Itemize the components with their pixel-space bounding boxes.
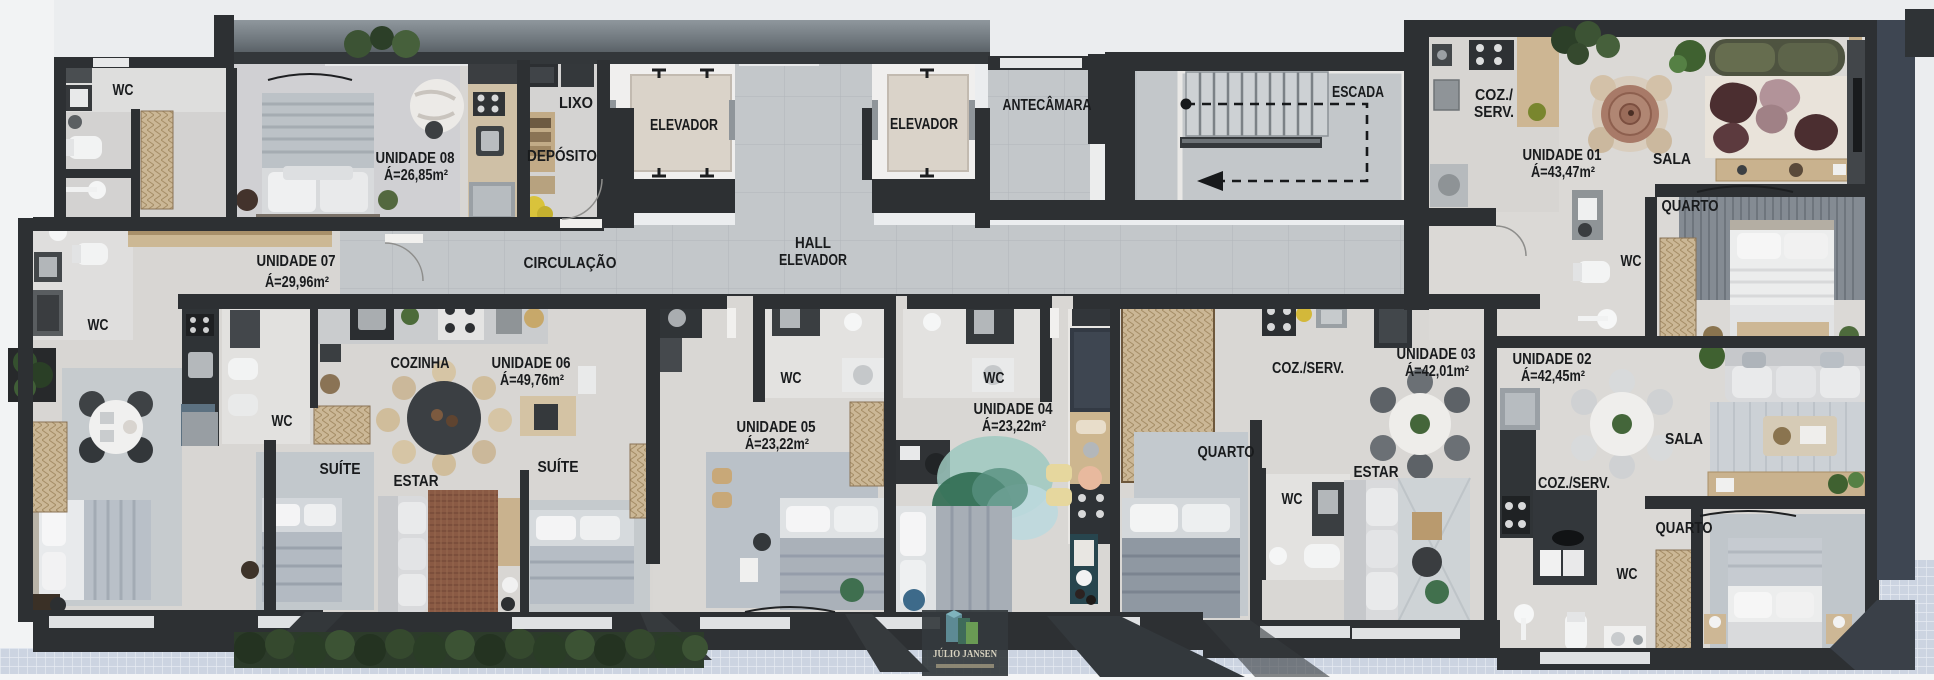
svg-text:COZ./: COZ./ <box>1475 87 1514 104</box>
svg-text:ANTECÂMARA: ANTECÂMARA <box>1003 96 1092 114</box>
svg-text:WC: WC <box>272 413 293 430</box>
svg-text:COZINHA: COZINHA <box>391 355 450 372</box>
svg-text:Á=26,85m²: Á=26,85m² <box>384 167 448 184</box>
svg-text:ESTAR: ESTAR <box>394 473 439 490</box>
svg-text:UNIDADE 04: UNIDADE 04 <box>974 401 1053 418</box>
svg-text:CIRCULAÇÃO: CIRCULAÇÃO <box>524 254 617 272</box>
svg-text:ESCADA: ESCADA <box>1332 84 1384 101</box>
svg-text:WC: WC <box>984 370 1005 387</box>
svg-text:WC: WC <box>1621 253 1642 270</box>
svg-text:JÚLIO JANSEN: JÚLIO JANSEN <box>933 648 998 660</box>
svg-text:SALA: SALA <box>1653 151 1691 168</box>
svg-text:UNIDADE 05: UNIDADE 05 <box>737 419 816 436</box>
svg-text:SERV.: SERV. <box>1474 104 1514 121</box>
svg-text:QUARTO: QUARTO <box>1656 520 1713 537</box>
svg-text:ELEVADOR: ELEVADOR <box>650 117 718 134</box>
svg-text:WC: WC <box>1282 491 1303 508</box>
svg-text:Á=23,22m²: Á=23,22m² <box>982 418 1046 435</box>
svg-text:UNIDADE 08: UNIDADE 08 <box>376 150 455 167</box>
svg-text:LIXO: LIXO <box>559 95 593 112</box>
svg-text:UNIDADE 01: UNIDADE 01 <box>1523 147 1602 164</box>
svg-text:Á=23,22m²: Á=23,22m² <box>745 436 809 453</box>
svg-text:WC: WC <box>1617 566 1638 583</box>
svg-text:Á=42,01m²: Á=42,01m² <box>1405 363 1469 380</box>
svg-text:ELEVADOR: ELEVADOR <box>890 116 958 133</box>
svg-text:SUÍTE: SUÍTE <box>538 459 579 476</box>
svg-text:DEPÓSITO: DEPÓSITO <box>527 147 597 165</box>
svg-text:Á=29,96m²: Á=29,96m² <box>265 274 329 291</box>
svg-text:Á=42,45m²: Á=42,45m² <box>1521 368 1585 385</box>
svg-text:SALA: SALA <box>1665 431 1703 448</box>
svg-text:UNIDADE 03: UNIDADE 03 <box>1397 346 1476 363</box>
svg-text:Á=49,76m²: Á=49,76m² <box>500 372 564 389</box>
svg-text:SUÍTE: SUÍTE <box>320 461 361 478</box>
svg-text:UNIDADE 02: UNIDADE 02 <box>1513 351 1592 368</box>
svg-text:Á=43,47m²: Á=43,47m² <box>1531 164 1595 181</box>
svg-text:ELEVADOR: ELEVADOR <box>779 252 847 269</box>
svg-text:WC: WC <box>113 82 134 99</box>
svg-text:UNIDADE 07: UNIDADE 07 <box>257 253 336 270</box>
svg-text:UNIDADE 06: UNIDADE 06 <box>492 355 571 372</box>
svg-text:COZ./SERV.: COZ./SERV. <box>1538 475 1610 492</box>
svg-text:QUARTO: QUARTO <box>1662 198 1719 215</box>
svg-text:ESTAR: ESTAR <box>1354 464 1399 481</box>
svg-text:COZ./SERV.: COZ./SERV. <box>1272 360 1344 377</box>
svg-text:WC: WC <box>781 370 802 387</box>
svg-text:QUARTO: QUARTO <box>1198 444 1255 461</box>
svg-text:HALL: HALL <box>795 235 831 252</box>
svg-text:WC: WC <box>88 317 109 334</box>
